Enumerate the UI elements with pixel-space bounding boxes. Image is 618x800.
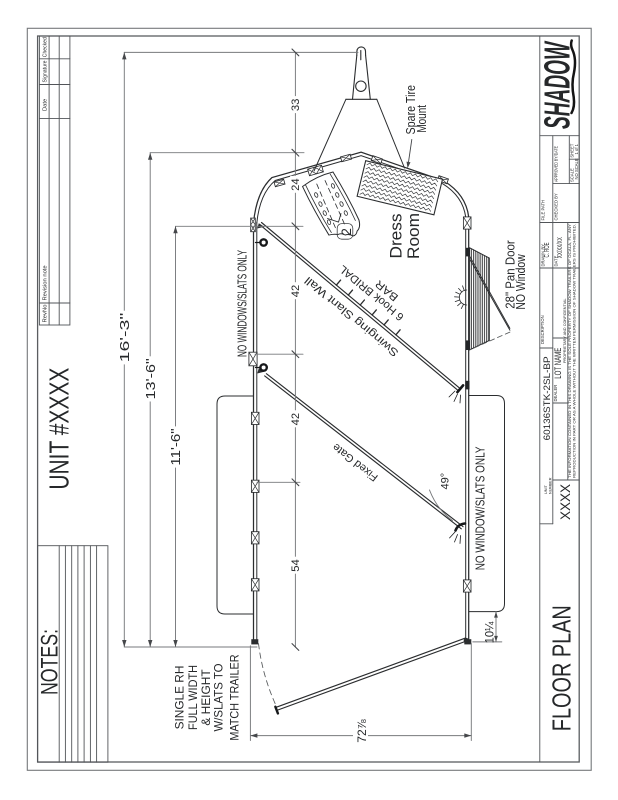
svg-text:FILE PATH: FILE PATH [541,200,546,221]
svg-text:MATCH TRAILER: MATCH TRAILER [228,654,242,740]
svg-text:LOT NAME: LOT NAME [553,348,563,379]
svg-text:Signature: Signature [43,61,49,83]
svg-text:42: 42 [290,285,302,298]
svg-text:UNIT: UNIT [544,484,548,494]
svg-text:54: 54 [290,559,302,572]
svg-text:1 of 1: 1 of 1 [574,143,579,154]
svg-text:Date: Date [43,99,49,111]
svg-text:42: 42 [290,413,302,426]
svg-text:10¼: 10¼ [483,621,497,644]
svg-text:16'-3": 16'-3" [117,312,132,362]
svg-text:SINGLE RH: SINGLE RH [172,666,186,730]
svg-text:PROPRIETARY AND CONFIDENTIAL: PROPRIETARY AND CONFIDENTIAL [563,298,567,363]
svg-text:XXXX: XXXX [558,484,573,520]
svg-text:Checked: Checked [43,37,49,57]
svg-text:24: 24 [290,178,302,191]
svg-text:NUMBER: NUMBER [549,477,553,494]
svg-text:DESCRIPTION: DESCRIPTION [540,315,545,344]
svg-text:REPRODUCTION IN PART OR AS A W: REPRODUCTION IN PART OR AS A WHOLE WITHO… [573,224,577,478]
svg-text:72⅞: 72⅞ [355,718,369,742]
svg-text:2: 2 [339,228,354,236]
svg-text:XX/XX/XX: XX/XX/XX [555,237,564,258]
svg-text:Revision note: Revision note [43,265,49,300]
svg-text:NO SCALE: NO SCALE [574,158,579,179]
svg-text:33: 33 [290,99,302,112]
svg-text:NO WINDOW/SLATS ONLY: NO WINDOW/SLATS ONLY [472,446,487,570]
svg-text:DEALER: DEALER [553,385,558,402]
svg-text:11'-6": 11'-6" [169,428,183,465]
svg-text:60136STK-2SL-BP: 60136STK-2SL-BP [542,356,553,440]
svg-text:C. ROE: C. ROE [542,243,551,258]
svg-text:FLOOR PLAN: FLOOR PLAN [547,605,577,731]
svg-text:49°: 49° [440,473,452,490]
svg-text:NO Window: NO Window [513,254,528,310]
svg-text:CHECKED BY: CHECKED BY [554,193,559,220]
svg-text:W/SLATS TO: W/SLATS TO [212,663,226,731]
svg-text:13'-6": 13'-6" [144,358,158,399]
svg-text:Mount: Mount [415,105,429,133]
svg-text:APPROVED BY/DATE: APPROVED BY/DATE [554,146,559,182]
svg-text:Room: Room [405,213,423,259]
svg-text:NO WINDOWS/SLATS ONLY: NO WINDOWS/SLATS ONLY [234,250,249,357]
svg-text:RevNo: RevNo [43,305,49,323]
svg-text:NOTES:: NOTES: [37,629,64,695]
svg-text:Dress: Dress [388,214,406,259]
svg-text:THE INFORMATION CONTAINED IN T: THE INFORMATION CONTAINED IN THIS DRAWIN… [568,223,572,478]
svg-text:UNIT #XXXX: UNIT #XXXX [44,368,75,490]
